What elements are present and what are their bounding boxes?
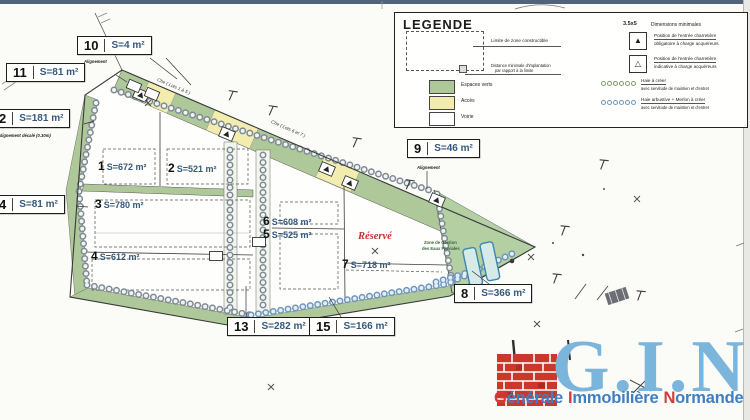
lot-label-8: 8S=366 m²: [454, 284, 532, 303]
legend-entree-2-line1: Position de l'entrée charretière: [654, 56, 716, 63]
haie-chain-icon: [601, 81, 636, 86]
legend-espaces-verts-label: Espaces verts: [461, 82, 492, 88]
lot-label-13: 13S=282 m²: [227, 317, 313, 336]
legend-haie-merlon-line1: Haie arbustive + Merlon à créer: [641, 97, 705, 104]
legend-limite-label: Limite de zone constructible: [491, 39, 548, 44]
lot-label-11: 11S=81 m²: [6, 63, 85, 82]
tagline-cap-n: N: [663, 389, 675, 407]
haie-merlon-chain-icon: [601, 100, 636, 105]
reserved-label: Réservé: [358, 231, 392, 242]
lot-label-12: 2S=181 m²: [0, 109, 70, 128]
parcel-label-1: 1S=672 m²: [98, 158, 146, 174]
lot-label-9: 9S=46 m²: [407, 139, 480, 158]
legend-entree-1-line2: obligatoire à charge acquéreurs: [654, 42, 719, 47]
parcel-label-4: 4S=612 m²: [91, 248, 139, 264]
filled-triangle-icon: ▲: [629, 32, 647, 50]
lot-label-14: 4S=81 m²: [0, 195, 65, 214]
tagline-word-generale: énérale: [507, 389, 563, 407]
legend-haie-merlon-line2: avec servitude de maintien et d'entret: [641, 106, 709, 110]
tagline-word-normande: ormande: [675, 389, 743, 407]
parcel-label-2: 2S=521 m²: [168, 160, 216, 176]
water-zone-label-2: des Eaux Pluviales: [422, 247, 460, 251]
site-plan-document: 1S=672 m² 2S=521 m² 3S=780 m² 4S=612 m² …: [0, 0, 750, 420]
legend-panel: LEGENDE Limite de zone constructible Dis…: [394, 12, 748, 128]
gin-logo-tagline: GénéraleImmobilièreNormande: [494, 390, 748, 407]
legend-swatch-acces: [429, 96, 455, 110]
lot-9-note: Alignement: [417, 166, 440, 170]
legend-haie-line2: avec servitude de maintien et d'entret: [641, 87, 709, 91]
legend-limite-symbol: [406, 31, 484, 71]
legend-entree-1-line1: Position de l'entrée charretière: [654, 33, 716, 40]
lot-label-15: 15S=166 m²: [309, 317, 395, 336]
legend-haie-line1: Haie à créer: [641, 78, 666, 85]
legend-title: LEGENDE: [403, 17, 473, 32]
legend-acces-label: Accès: [461, 98, 475, 104]
legend-entree-2-line2: indicative à charge acquéreurs: [654, 65, 717, 70]
parcel-label-5: 5S=525 m²: [263, 226, 311, 242]
parcel-label-3: 3S=780 m²: [95, 196, 143, 212]
lot-12-note: Alignement décalé (0.30m): [0, 134, 51, 138]
legend-swatch-voirie: [429, 112, 455, 126]
water-zone-label-1: Zone de Gestion: [424, 241, 457, 245]
legend-swatch-espaces-verts: [429, 80, 455, 94]
legend-voirie-label: Voirie: [461, 114, 474, 120]
parcel-label-7: 7S=718 m²: [342, 256, 390, 272]
lot-label-10: 10S=4 m²: [77, 36, 152, 55]
lot-10-note: Alignement: [84, 60, 107, 64]
open-triangle-icon: △: [629, 55, 647, 73]
legend-dims-label: Dimensions minimales: [651, 23, 701, 28]
tagline-word-immobiliere: mmobilière: [572, 389, 658, 407]
tagline-cap-g: G: [494, 389, 507, 407]
legend-dims-value: 3.5x5: [623, 22, 637, 28]
legend-distance-label-2: par rapport à la limite: [495, 69, 533, 73]
